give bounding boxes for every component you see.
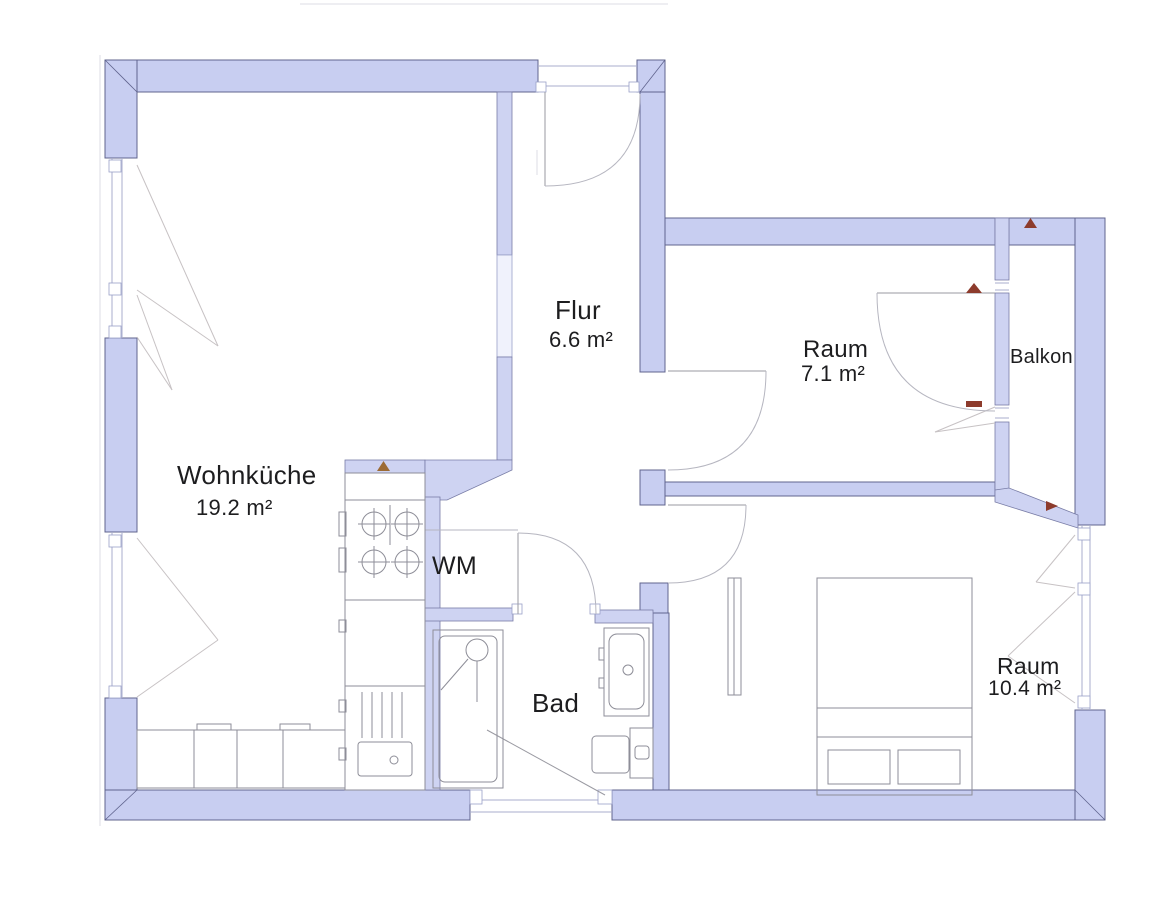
- room-area-wohnkueche: 19.2 m²: [196, 495, 273, 521]
- toilet: [592, 728, 653, 778]
- construction-lines: [100, 4, 668, 826]
- exterior-walls: [105, 60, 1105, 820]
- kitchen-sink: [358, 692, 412, 776]
- room-area-raum-gross: 10.4 m²: [988, 677, 1061, 701]
- interior-walls: [345, 92, 1078, 790]
- room-area-raum-klein: 7.1 m²: [801, 361, 865, 387]
- kitchen-unit: [339, 473, 425, 790]
- room-label-wm: WM: [432, 552, 477, 581]
- bed: [817, 578, 972, 795]
- room-label-wohnkueche: Wohnküche: [177, 460, 317, 491]
- room-area-flur: 6.6 m²: [549, 327, 613, 353]
- room-label-balkon: Balkon: [1010, 346, 1073, 369]
- room-label-raum-gross: Raum: [997, 653, 1060, 680]
- washbasin: [599, 628, 649, 716]
- room-label-bad: Bad: [532, 688, 579, 719]
- shower: [433, 630, 503, 788]
- floorplan-drawing: [0, 0, 1170, 913]
- floorplan: Wohnküche 19.2 m² Flur 6.6 m² Raum 7.1 m…: [0, 0, 1170, 913]
- room-label-flur: Flur: [555, 295, 601, 326]
- counter: [137, 724, 345, 788]
- room-label-raum-klein: Raum: [803, 336, 868, 364]
- wardrobe: [728, 578, 741, 695]
